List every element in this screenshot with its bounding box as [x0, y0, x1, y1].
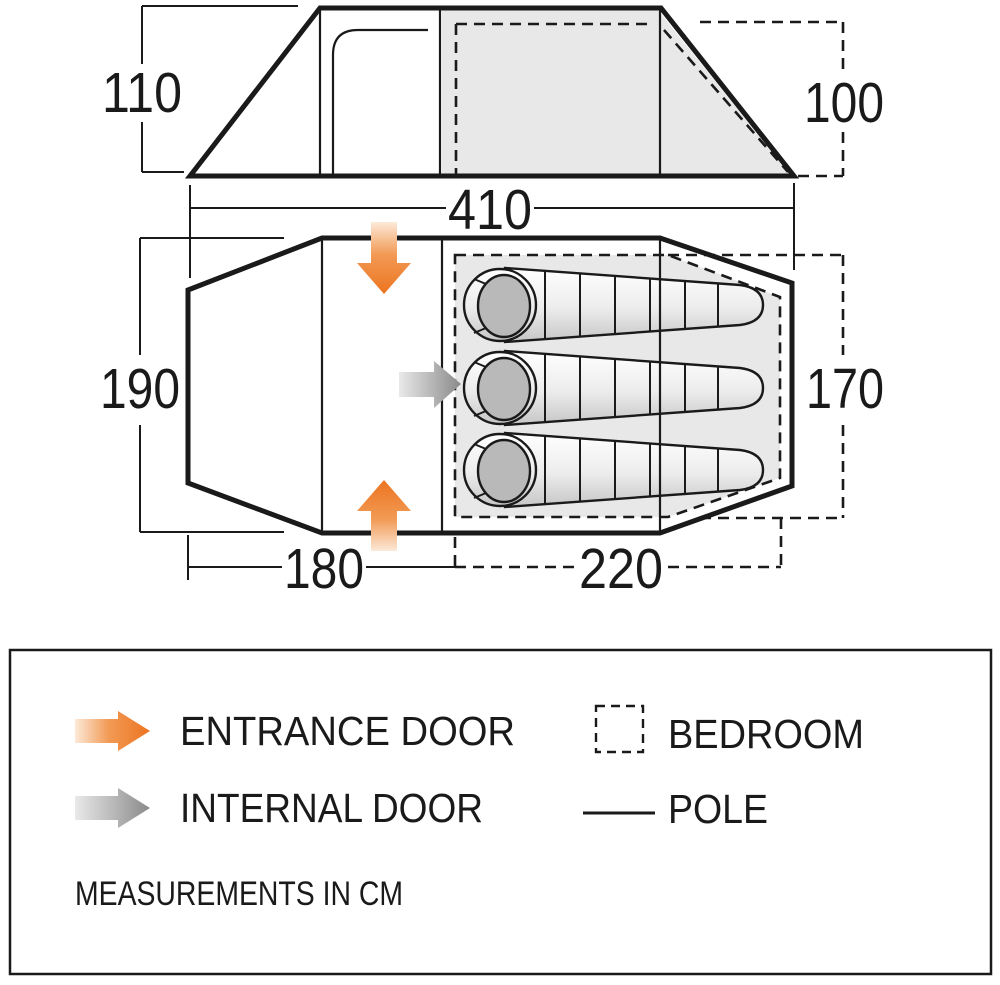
measurements-note: MEASUREMENTS IN CM [75, 875, 403, 913]
sleeping-bags [464, 268, 763, 507]
legend-border [10, 650, 991, 974]
legend: ENTRANCE DOOR BEDROOM INTERNAL DOOR POLE… [10, 650, 991, 974]
dim-220-label: 220 [579, 537, 663, 601]
pole-label: POLE [668, 786, 768, 832]
dim-170-label: 170 [806, 357, 884, 421]
dim-180: 180 [188, 535, 455, 601]
diagram-canvas: 110 100 410 [0, 0, 1000, 985]
entrance-door-label: ENTRANCE DOOR [180, 708, 515, 754]
dim-410-label: 410 [448, 178, 532, 242]
bedroom-label: BEDROOM [668, 711, 864, 757]
dim-110-label: 110 [102, 61, 182, 125]
dim-190-label: 190 [100, 357, 180, 421]
floor-plan: 190 170 180 220 [100, 222, 884, 601]
dim-100-label: 100 [804, 71, 884, 135]
tent-dimension-diagram: 110 100 410 [0, 0, 1000, 985]
side-bedroom-area [442, 10, 790, 175]
internal-door-label: INTERNAL DOOR [180, 785, 483, 831]
dim-180-label: 180 [284, 537, 364, 601]
